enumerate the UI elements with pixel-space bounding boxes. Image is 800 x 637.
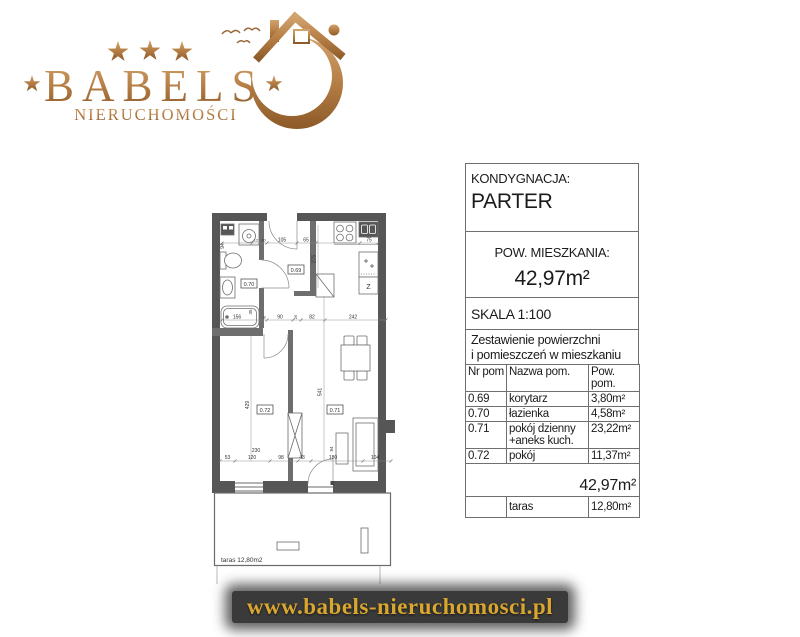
cell-name: pokój [507, 449, 589, 464]
svg-text:84: 84 [329, 446, 334, 452]
total-row: 42,97m² [466, 464, 640, 497]
svg-text:0.69: 0.69 [291, 268, 302, 274]
table-header-row: Nr pom Nazwa pom. Pow. pom. [466, 365, 640, 392]
cell-name: pokój dzienny +aneks kuch. [507, 422, 589, 449]
cell-nr [466, 497, 507, 518]
room-label-071: 0.71 [327, 405, 343, 414]
brand-logo: BABELS NIERUCHOMOŚCI [8, 4, 358, 139]
dishwasher-icon: Z [359, 277, 378, 294]
terrace-item [361, 528, 368, 553]
fridge-icon [359, 252, 378, 277]
svg-text:94: 94 [220, 243, 226, 249]
svg-text:0.72: 0.72 [260, 408, 271, 414]
svg-text:90: 90 [277, 315, 283, 321]
cell-area: 11,37m² [589, 449, 640, 464]
svg-text:230: 230 [252, 448, 261, 454]
info-panel: KONDYGNACJA: PARTER POW. MIESZKANIA: 42,… [465, 164, 639, 518]
star-icon [108, 41, 129, 61]
birds-icon [222, 28, 260, 43]
star-icon [140, 40, 161, 60]
rooms-table: Nr pom Nazwa pom. Pow. pom. 0.69 korytar… [465, 364, 640, 518]
svg-text:120: 120 [248, 455, 257, 461]
floor-value: PARTER [471, 190, 638, 214]
wardrobe-icon [316, 274, 334, 297]
table-row: 0.70 łazienka 4,58m² [466, 407, 640, 422]
sofa-icon [353, 418, 378, 471]
cell-area: 3,80m² [589, 392, 640, 407]
cell-nr: 0.71 [466, 422, 507, 449]
scale-label: SKALA 1:100 [465, 297, 639, 330]
svg-text:Z: Z [366, 284, 371, 291]
living-furniture [336, 336, 378, 471]
svg-text:30: 30 [261, 238, 266, 243]
cell-nr: 0.69 [466, 392, 507, 407]
area-value: 42,97m² [466, 267, 638, 291]
svg-text:75: 75 [366, 238, 372, 244]
svg-text:156: 156 [233, 315, 242, 321]
sun-icon [324, 20, 344, 41]
col-header-nr: Nr pom [466, 365, 507, 392]
sink-icon [220, 277, 235, 298]
kitchen-fixtures: Z [316, 222, 378, 297]
cell-name: taras [507, 497, 589, 518]
svg-text:35: 35 [248, 309, 253, 315]
brand-name: BABELS [44, 61, 265, 111]
svg-text:43: 43 [299, 455, 305, 461]
shaft-hatch [288, 413, 302, 458]
table-title-line1: Zestawienie powierzchni [471, 333, 638, 348]
area-section: POW. MIESZKANIA: 42,97m² [465, 231, 639, 298]
svg-text:541: 541 [318, 388, 324, 397]
terrace-item [277, 542, 299, 550]
attic-window-icon [294, 30, 309, 43]
table-row: 0.71 pokój dzienny +aneks kuch. 23,22m² [466, 422, 640, 449]
cell-nr: 0.70 [466, 407, 507, 422]
stove-icon [334, 222, 356, 243]
total-area: 42,97m² [466, 464, 640, 497]
svg-text:8: 8 [263, 315, 266, 320]
brand-subtitle: NIERUCHOMOŚCI [74, 105, 238, 124]
cell-area: 12,80m² [589, 497, 640, 518]
col-header-area: Pow. pom. [589, 365, 640, 392]
room-label-070: 0.70 [241, 279, 257, 288]
side-table-icon [336, 433, 348, 464]
svg-text:82: 82 [309, 315, 315, 321]
svg-text:275: 275 [312, 255, 318, 264]
cell-name: łazienka [507, 407, 589, 422]
table-title-line2: i pomieszczeń w mieszkaniu [471, 348, 638, 363]
cell-name: korytarz [507, 392, 589, 407]
website-url: www.babels-nieruchomosci.pl [232, 591, 568, 623]
toilet-icon [220, 252, 242, 269]
room-label-072: 0.72 [257, 405, 273, 414]
star-icon [24, 75, 41, 91]
svg-text:65: 65 [303, 238, 309, 244]
cell-area: 4,58m² [589, 407, 640, 422]
kitchen-sink-icon [359, 222, 378, 237]
svg-text:98: 98 [278, 455, 284, 461]
svg-text:26: 26 [293, 314, 298, 319]
terrace-label: taras 12,80m2 [221, 557, 263, 564]
floor-plan: Z 12 30 105 65 75 [208, 208, 398, 600]
dining-table-icon [341, 336, 370, 380]
table-row: 0.72 pokój 11,37m² [466, 449, 640, 464]
svg-text:180: 180 [329, 455, 338, 461]
svg-text:12: 12 [254, 238, 259, 243]
col-header-name: Nazwa pom. [507, 365, 589, 392]
star-icon [172, 41, 193, 61]
table-row: 0.69 korytarz 3,80m² [466, 392, 640, 407]
floor-section: KONDYGNACJA: PARTER [465, 163, 639, 232]
table-title: Zestawienie powierzchni i pomieszczeń w … [465, 329, 639, 365]
table-row-taras: taras 12,80m² [466, 497, 640, 518]
area-label: POW. MIESZKANIA: [466, 245, 638, 260]
floor-label: KONDYGNACJA: [471, 171, 638, 186]
cell-area: 23,22m² [589, 422, 640, 449]
svg-text:105: 105 [278, 238, 287, 244]
svg-text:242: 242 [349, 315, 358, 321]
terrace: taras 12,80m2 [215, 493, 391, 584]
door-pivot [331, 481, 335, 485]
room-label-069: 0.69 [288, 265, 304, 274]
cell-nr: 0.72 [466, 449, 507, 464]
svg-text:0.71: 0.71 [330, 408, 341, 414]
svg-text:104: 104 [371, 455, 380, 461]
svg-text:0.70: 0.70 [244, 282, 255, 288]
svg-text:53: 53 [225, 455, 231, 461]
svg-text:429: 429 [245, 401, 251, 410]
